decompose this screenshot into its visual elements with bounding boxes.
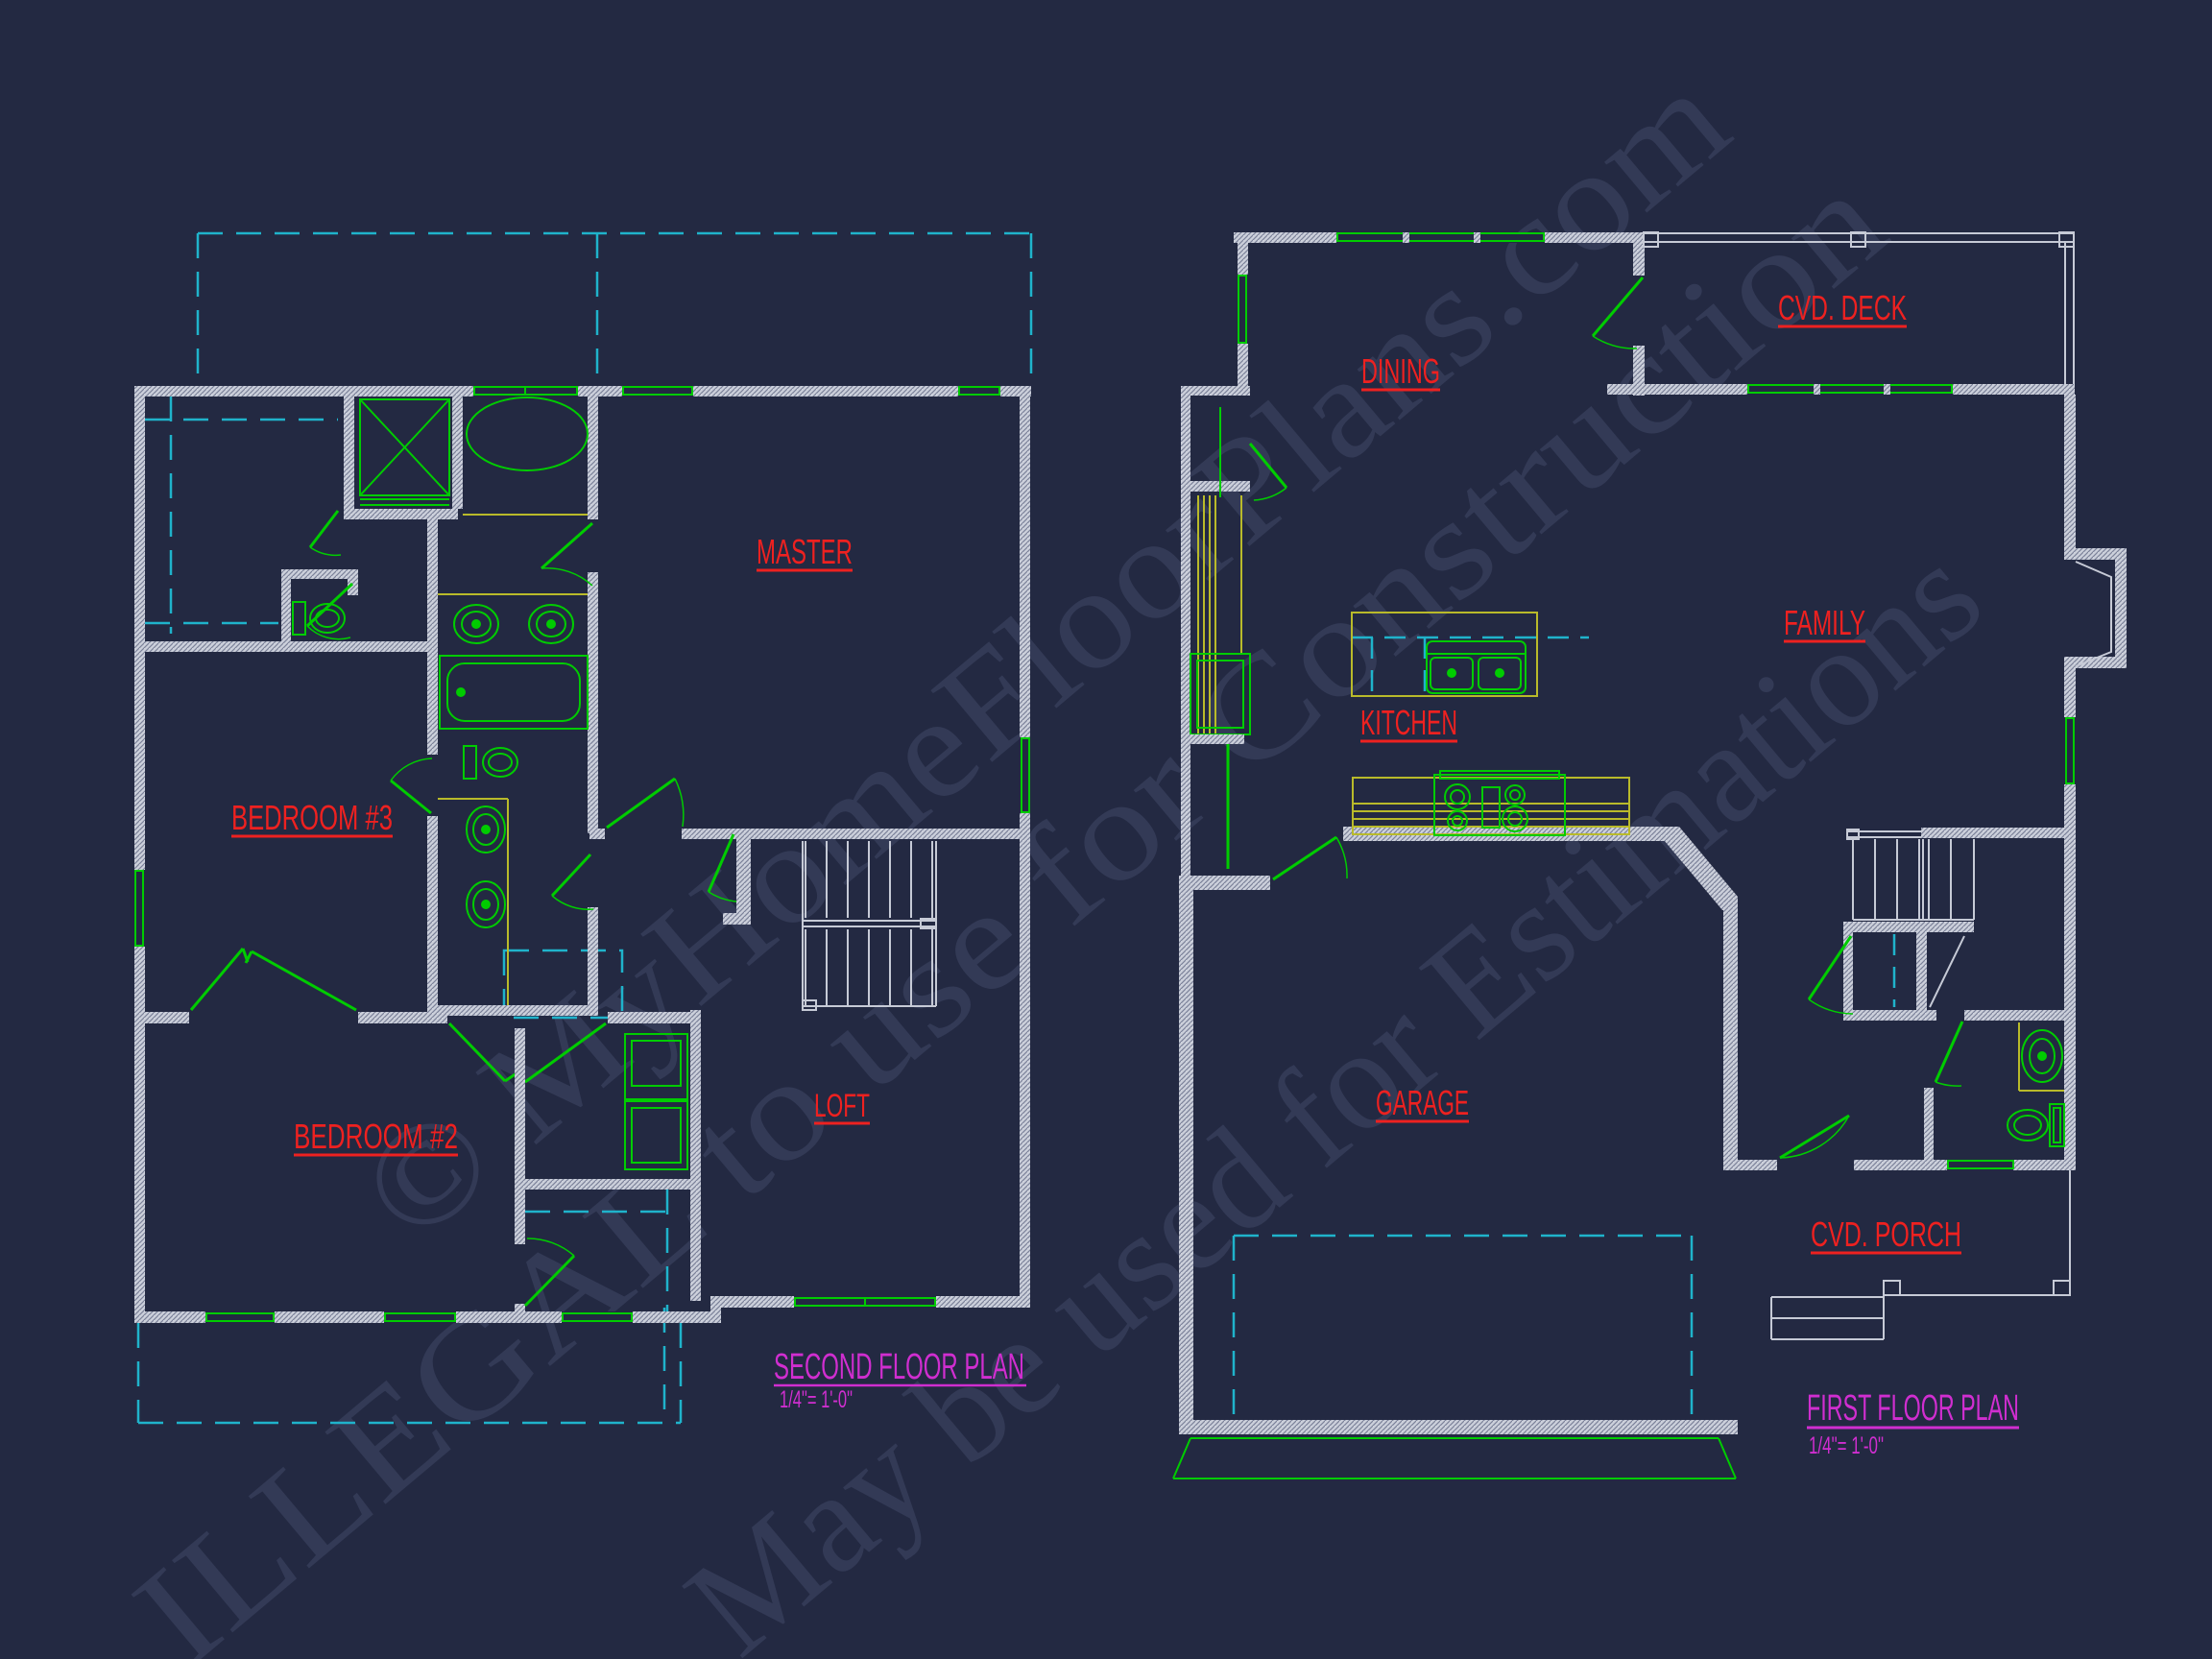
svg-text:SECOND FLOOR PLAN: SECOND FLOOR PLAN xyxy=(774,1347,1024,1387)
svg-text:KITCHEN: KITCHEN xyxy=(1360,703,1457,742)
svg-text:BEDROOM #2: BEDROOM #2 xyxy=(294,1117,458,1156)
svg-text:GARAGE: GARAGE xyxy=(1376,1083,1469,1122)
svg-text:FAMILY: FAMILY xyxy=(1784,603,1865,642)
svg-text:MASTER: MASTER xyxy=(757,532,853,571)
svg-text:DINING: DINING xyxy=(1361,351,1440,391)
svg-text:CVD. PORCH: CVD. PORCH xyxy=(1811,1214,1961,1254)
svg-text:BEDROOM #3: BEDROOM #3 xyxy=(231,798,393,837)
svg-text:LOFT: LOFT xyxy=(814,1088,870,1124)
svg-text:1/4"= 1'-0": 1/4"= 1'-0" xyxy=(1809,1432,1884,1459)
svg-text:CVD. DECK: CVD. DECK xyxy=(1778,288,1907,327)
svg-text:FIRST FLOOR PLAN: FIRST FLOOR PLAN xyxy=(1807,1388,2019,1429)
svg-text:1/4"= 1'-0": 1/4"= 1'-0" xyxy=(780,1386,853,1413)
